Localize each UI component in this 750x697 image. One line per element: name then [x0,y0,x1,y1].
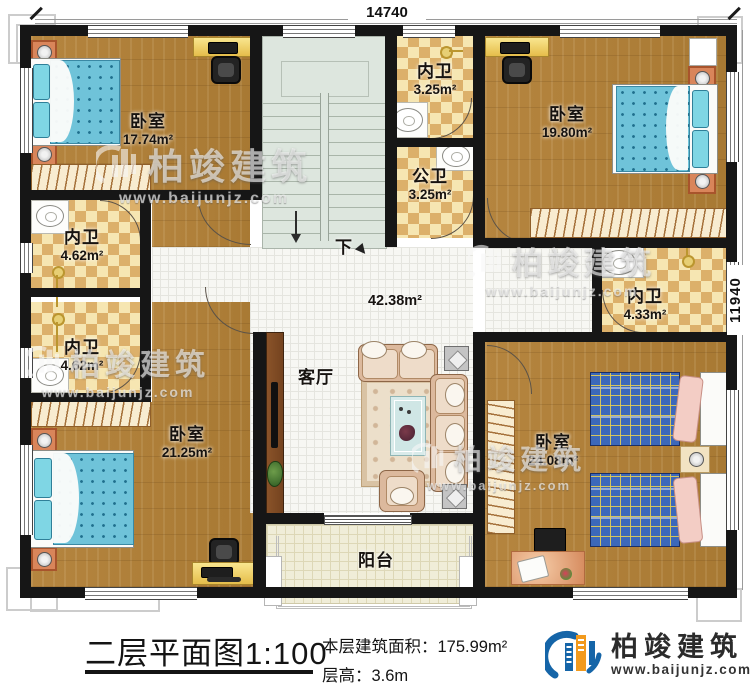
room-label-bedroom-tl: 卧室 17.74m² [100,112,196,147]
room-label-balcony: 阳台 [336,551,416,571]
floor-drain-icon [52,266,65,279]
pillow [692,130,709,168]
wall-between-left-baths [20,288,151,297]
plan-title-text: 二层平面图 [85,636,245,671]
room-label-bath-left-upper: 内卫 4.62m² [34,228,130,263]
stair-down-text: 下 [330,238,358,258]
room-name: 内卫 [597,287,693,307]
wardrobe [530,208,728,238]
room-label-bath-right: 内卫 4.33m² [597,287,693,322]
desk [192,562,256,585]
room-label-bath-public: 公卫 3.25m² [382,167,478,202]
room-label-bath-left-lower: 内卫 4.62m² [34,338,130,373]
towel-bar [449,50,463,52]
window-right-3 [726,390,739,530]
room-area: 17.74m² [100,132,196,148]
room-area: 4.62m² [34,358,130,374]
throw-pillow [390,487,414,505]
computer-icon [534,528,566,552]
pillow [33,102,50,138]
room-name: 内卫 [387,62,483,82]
brand-text: 柏竣建筑 www.baijunjz.com [611,633,750,676]
wall-between-top-baths [385,138,484,147]
tv-icon [271,382,278,448]
nightstand [31,547,57,571]
lamp-icon [37,433,52,448]
desk [485,37,549,57]
balcony-railing [276,536,472,609]
room-area: 42.38m² [347,293,443,310]
lamp-icon [695,174,710,189]
wall-bedroom-tl-right [250,25,262,197]
towel-bar [686,248,688,256]
wall-bedroom-br-left [473,332,485,598]
room-label-bedroom-tr: 卧室 19.80m² [519,105,615,140]
desk [193,37,257,57]
title-block: 二层平面图1:100 本层建筑面积：175.99m² 层高：3.6m 柏竣建筑 … [0,625,750,697]
window-top-3 [403,25,455,38]
window-left-2 [20,243,33,273]
throw-pillow [445,383,465,407]
room-area: 4.33m² [597,307,693,323]
window-left-1 [20,68,33,153]
bed-blanket [666,86,688,170]
lamp-icon [37,552,52,567]
sofa-top [358,344,438,382]
room-name: 内卫 [34,228,130,248]
floor-area-value: 175.99m² [438,638,508,656]
pillow [34,458,52,498]
title-underline [85,670,313,674]
office-chair [211,56,241,84]
balcony-post [264,556,282,606]
towel-ring-icon [440,46,453,59]
floor-area-row: 本层建筑面积：175.99m² [322,633,507,662]
wall-living-balcony-left [266,513,324,524]
window-right-1 [726,72,739,162]
twin-bed-frame [700,473,728,547]
pillow [34,500,52,540]
sofa-right [430,374,468,492]
dimension-right-value: 11940 [727,265,747,335]
throw-pillow [401,341,427,359]
floor-height-row: 层高：3.6m [322,662,507,691]
laptop-icon [517,555,549,583]
floor-drain-icon [52,313,65,326]
living-room-floor-right-corridor [485,248,592,332]
computer-icon [208,42,238,54]
twin-bed-plaid [590,473,680,547]
nightstand [680,446,710,473]
wall-balcony-left [253,513,266,598]
room-label-bath-top: 内卫 3.25m² [387,62,483,97]
plan-scale: 1:100 [245,636,328,671]
room-name: 客厅 [284,368,348,388]
wall-bedroom-br-top [473,332,737,342]
wall-bedroom-bl-right [253,332,266,513]
dimension-top-value: 14740 [348,4,426,22]
lamp-icon [689,452,704,467]
room-area: 3.25m² [387,82,483,98]
wall-living-balcony-right [410,513,473,524]
sink-icon [393,108,423,132]
room-area: 3.25m² [382,187,478,203]
sofa-single [379,470,425,512]
window-bottom-1 [85,587,197,600]
dimension-line-top-2 [35,23,737,24]
speaker-icon [444,346,469,371]
stair-down-label: 下 [330,238,358,258]
table-decor [399,407,403,411]
floor-plan-drawing: 卧室 17.74m² 内卫 3.25m² 公卫 3.25m² 卧室 19.80m… [0,0,750,625]
balcony-sliding-door [324,515,412,525]
lamp-icon [37,147,52,162]
room-area: 21.25m² [139,445,235,461]
stair-direction-arrowhead [291,234,301,243]
wall-bathrooms-left-right [140,196,151,402]
brand-logo: 柏竣建筑 www.baijunjz.com [545,627,750,683]
room-area: 19.80m² [519,125,615,141]
window-top-1 [88,25,188,38]
stair-stringer [320,93,329,241]
room-label-living: 客厅 [284,368,348,388]
keyboard-icon [207,577,241,582]
room-name: 卧室 [100,112,196,132]
floor-area-caption: 本层建筑面积： [322,638,438,656]
sink-icon [442,145,470,167]
throw-pillow [361,341,387,359]
towel-ring-icon [682,255,695,268]
wall-bedroom-tr-left [473,25,485,243]
wall-stair-right [385,25,397,247]
wardrobe [31,164,151,192]
room-name: 公卫 [382,167,478,187]
desk [511,551,585,585]
room-name: 卧室 [139,425,235,445]
room-area: 24.08m² [505,453,601,469]
table-decor [407,410,411,414]
brand-name: 柏竣建筑 [611,633,750,661]
living-room-area-label: 42.38m² [347,293,443,310]
throw-pillow [445,460,465,484]
window-top-2 [283,25,355,38]
window-left-4 [20,445,33,535]
flower-icon [560,568,572,580]
wall-bedroom-tr-bottom [473,238,737,248]
stair-direction-arrow [295,211,297,235]
window-left-3 [20,348,33,378]
room-name: 卧室 [519,105,615,125]
room-area: 4.62m² [34,248,130,264]
window-bottom-2 [573,587,688,600]
wardrobe [31,400,151,427]
plan-specs: 本层建筑面积：175.99m² 层高：3.6m [322,633,507,691]
twin-bed-plaid [590,372,680,446]
floor-plan-page: 卧室 17.74m² 内卫 3.25m² 公卫 3.25m² 卧室 19.80m… [0,0,750,697]
nightstand [31,428,57,452]
room-label-bedroom-br: 卧室 24.08m² [505,433,601,468]
office-chair [502,56,532,84]
staircase [262,36,387,249]
twin-bed-frame [700,372,728,446]
room-name: 卧室 [505,433,601,453]
throw-pillow [445,423,465,447]
sink-icon [602,250,636,275]
room-label-bedroom-bl: 卧室 21.25m² [139,425,235,460]
floor-height-caption: 层高： [322,667,372,685]
corner-shelf [689,38,717,66]
room-name: 阳台 [336,551,416,571]
window-top-4 [560,25,660,38]
plan-title: 二层平面图1:100 [85,628,328,673]
pillow [33,64,50,100]
speaker-icon [442,484,467,509]
sink-icon [36,205,64,227]
room-name: 内卫 [34,338,130,358]
brand-website: www.baijunjz.com [611,662,750,677]
wall-bath-left-lower-bottom [20,393,151,402]
coffee-table [390,396,426,456]
pillow [692,90,709,128]
computer-icon [500,42,530,54]
floor-height-value: 3.6m [372,667,409,685]
brand-logo-icon [545,627,603,683]
